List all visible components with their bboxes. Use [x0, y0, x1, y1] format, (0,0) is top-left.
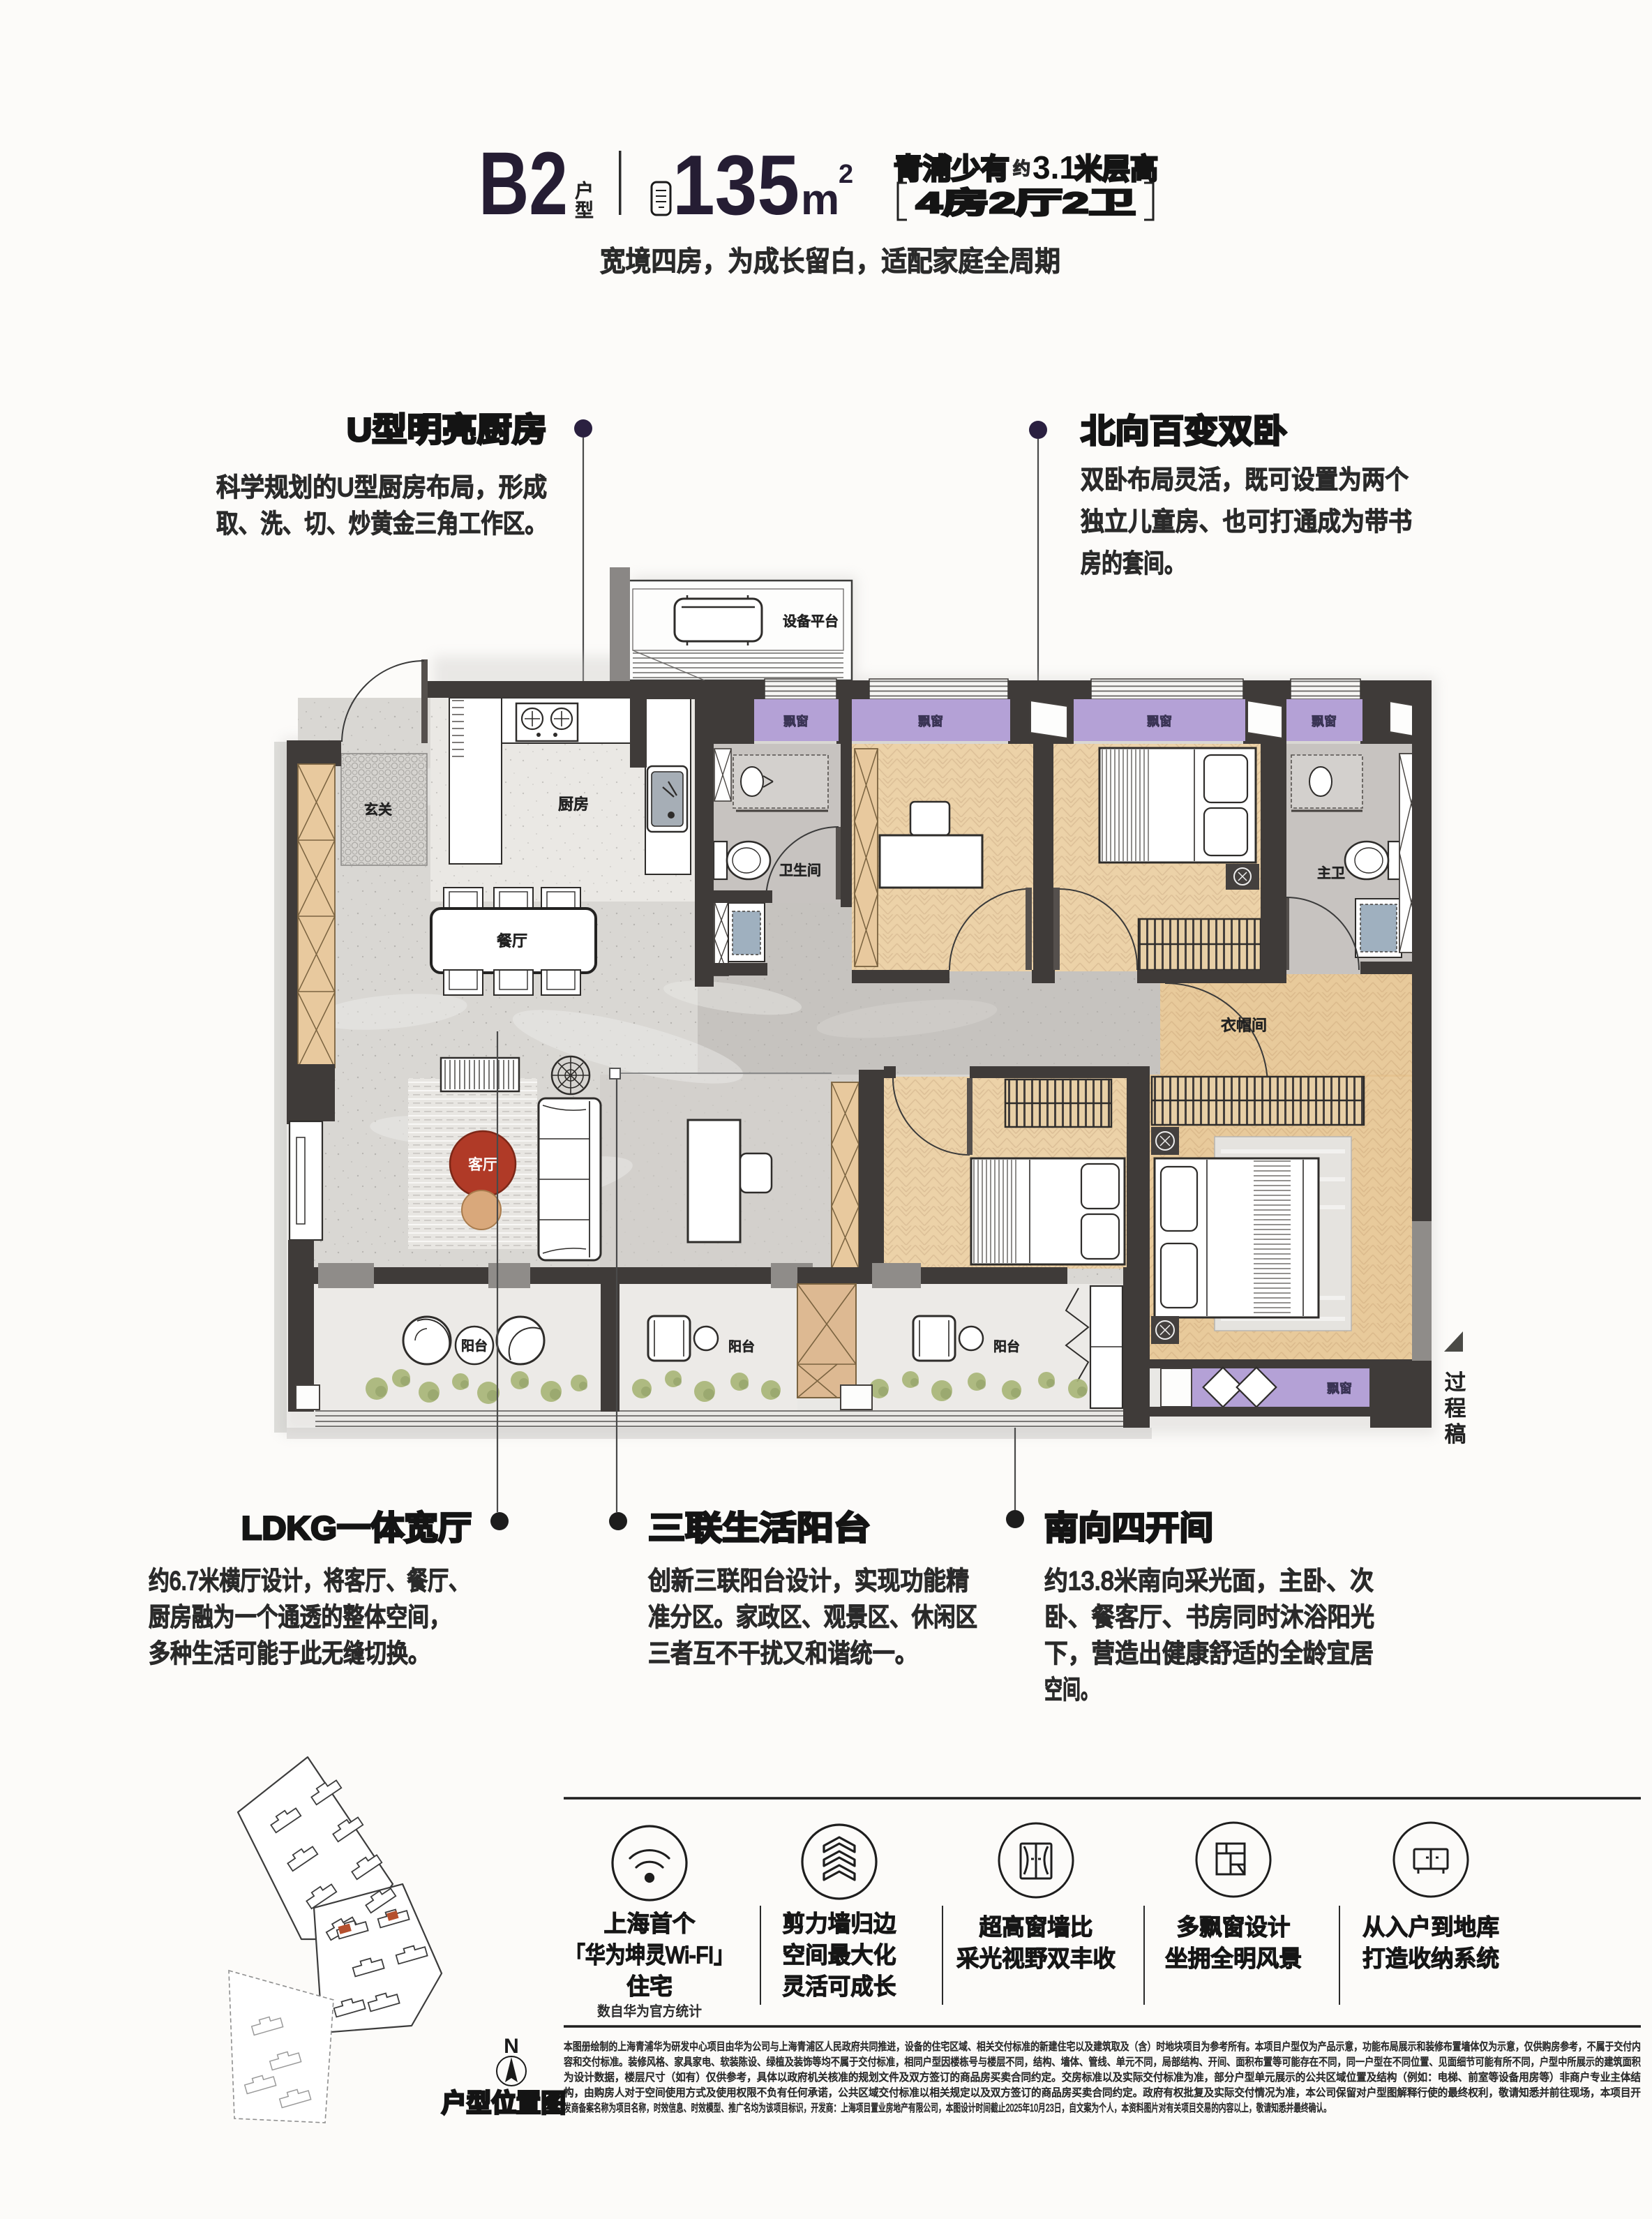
svg-text:科学规划的U型厨房布局，形成: 科学规划的U型厨房布局，形成: [216, 473, 547, 502]
svg-text:飘窗: 飘窗: [1327, 1382, 1352, 1396]
svg-text:B2: B2: [479, 134, 568, 234]
svg-text:设备平台: 设备平台: [783, 613, 839, 629]
svg-text:「华为坤灵Wi-FI」: 「华为坤灵Wi-FI」: [565, 1942, 734, 1968]
svg-text:过: 过: [1445, 1370, 1466, 1395]
svg-text:发商备案名称为项目名称，时效信息、时效模型、推广名均为该项目: 发商备案名称为项目名称，时效信息、时效模型、推广名均为该项目标识，开发商：上海项…: [564, 2102, 1331, 2114]
svg-text:约: 约: [1013, 159, 1030, 179]
svg-text:卧、餐客厅、书房同时沐浴阳光: 卧、餐客厅、书房同时沐浴阳光: [1044, 1603, 1374, 1631]
svg-text:超高窗墙比: 超高窗墙比: [979, 1914, 1093, 1940]
svg-text:多飘窗设计: 多飘窗设计: [1177, 1914, 1291, 1940]
svg-text:坐拥全明风景: 坐拥全明风景: [1165, 1945, 1302, 1971]
svg-text:青浦少有: 青浦少有: [894, 153, 1009, 185]
svg-text:多种生活可能于此无缝切换。: 多种生活可能于此无缝切换。: [149, 1639, 430, 1668]
svg-text:卫生间: 卫生间: [779, 862, 821, 879]
svg-text:阳台: 阳台: [993, 1339, 1020, 1354]
svg-text:户: 户: [575, 181, 594, 202]
svg-text:阳台: 阳台: [728, 1339, 755, 1354]
svg-text:构，由购房人对于空间使用方式及使用权限不负有任何承诺，公共区: 构，由购房人对于空间使用方式及使用权限不负有任何承诺，公共区域交付标准以相关规定…: [564, 2086, 1641, 2099]
svg-text:空间。: 空间。: [1044, 1675, 1099, 1704]
svg-text:4房2厅2卫: 4房2厅2卫: [916, 186, 1136, 219]
svg-text:约6.7米横厅设计，将客厅、餐厅、: 约6.7米横厅设计，将客厅、餐厅、: [149, 1567, 470, 1595]
svg-text:户型位置图: 户型位置图: [442, 2089, 566, 2117]
svg-text:三联生活阳台: 三联生活阳台: [648, 1509, 871, 1546]
svg-text:2: 2: [839, 160, 853, 189]
svg-text:型: 型: [575, 200, 594, 221]
svg-text:取、洗、切、炒黄金三角工作区。: 取、洗、切、炒黄金三角工作区。: [216, 509, 547, 538]
svg-text:约13.8米南向采光面，主卧、次: 约13.8米南向采光面，主卧、次: [1044, 1567, 1374, 1595]
svg-text:为设计数据，楼层尺寸（如有）仅供参考，具体以政府机关核准的规: 为设计数据，楼层尺寸（如有）仅供参考，具体以政府机关核准的规划文件及双方签订的商…: [564, 2071, 1641, 2084]
svg-text:住宅: 住宅: [626, 1973, 673, 1999]
svg-text:创新三联阳台设计，实现功能精: 创新三联阳台设计，实现功能精: [648, 1567, 969, 1595]
svg-text:飘窗: 飘窗: [1312, 715, 1337, 729]
svg-text:剪力墙归边: 剪力墙归边: [783, 1911, 896, 1936]
svg-text:米层高: 米层高: [1074, 153, 1158, 185]
svg-text:灵活可成长: 灵活可成长: [783, 1973, 896, 1999]
svg-text:U型明亮厨房: U型明亮厨房: [347, 411, 547, 448]
svg-text:北向百变双卧: 北向百变双卧: [1081, 412, 1287, 449]
svg-text:独立儿童房、也可打通成为带书: 独立儿童房、也可打通成为带书: [1081, 507, 1412, 536]
svg-text:厨房融为一个通透的整体空间，: 厨房融为一个通透的整体空间，: [149, 1603, 451, 1631]
svg-text:宽境四房，为成长留白，适配家庭全周期: 宽境四房，为成长留白，适配家庭全周期: [600, 246, 1060, 277]
svg-text:阳台: 阳台: [461, 1338, 488, 1354]
svg-text:玄关: 玄关: [364, 802, 392, 818]
svg-text:打造收纳系统: 打造收纳系统: [1362, 1945, 1499, 1971]
svg-text:下，营造出健康舒适的全龄宜居: 下，营造出健康舒适的全龄宜居: [1044, 1639, 1374, 1668]
svg-text:主卫: 主卫: [1317, 865, 1345, 881]
svg-text:本图册绘制的上海青浦华为研发中心项目由华为公司与上海青浦区人: 本图册绘制的上海青浦华为研发中心项目由华为公司与上海青浦区人民政府共同推进，设备…: [564, 2040, 1641, 2053]
svg-text:数自华为官方统计: 数自华为官方统计: [597, 2003, 702, 2019]
svg-text:空间最大化: 空间最大化: [783, 1942, 896, 1968]
svg-text:稿: 稿: [1445, 1422, 1466, 1447]
svg-text:双卧布局灵活，既可设置为两个: 双卧布局灵活，既可设置为两个: [1081, 465, 1409, 494]
svg-text:上海首个: 上海首个: [604, 1911, 696, 1936]
svg-text:LDKG一体宽厅: LDKG一体宽厅: [241, 1509, 472, 1546]
svg-text:从入户到地库: 从入户到地库: [1362, 1914, 1499, 1940]
svg-text:衣帽间: 衣帽间: [1221, 1017, 1267, 1034]
svg-text:飘窗: 飘窗: [1147, 715, 1172, 729]
svg-text:程: 程: [1445, 1396, 1466, 1421]
svg-text:房的套间。: 房的套间。: [1081, 549, 1185, 578]
svg-text:飘窗: 飘窗: [783, 715, 809, 729]
svg-text:容和交付标准。装修风格、家具家电、软装陈设、绿植及装饰等均不: 容和交付标准。装修风格、家具家电、软装陈设、绿植及装饰等均不属于交付标准，相同户…: [564, 2056, 1641, 2068]
svg-text:采光视野双丰收: 采光视野双丰收: [956, 1945, 1116, 1971]
svg-text:南向四开间: 南向四开间: [1044, 1509, 1213, 1546]
svg-text:餐厅: 餐厅: [497, 932, 527, 950]
svg-text:飘窗: 飘窗: [918, 715, 943, 729]
svg-text:N: N: [504, 2035, 519, 2058]
svg-text:准分区。家政区、观景区、休闲区: 准分区。家政区、观景区、休闲区: [648, 1603, 977, 1631]
svg-text:厨房: 厨房: [558, 795, 589, 813]
svg-text:客厅: 客厅: [468, 1157, 497, 1173]
svg-text:m: m: [801, 176, 839, 224]
svg-text:135: 135: [673, 137, 799, 232]
svg-text:三者互不干扰又和谐统一。: 三者互不干扰又和谐统一。: [648, 1639, 917, 1668]
svg-text:3.1: 3.1: [1032, 149, 1077, 186]
